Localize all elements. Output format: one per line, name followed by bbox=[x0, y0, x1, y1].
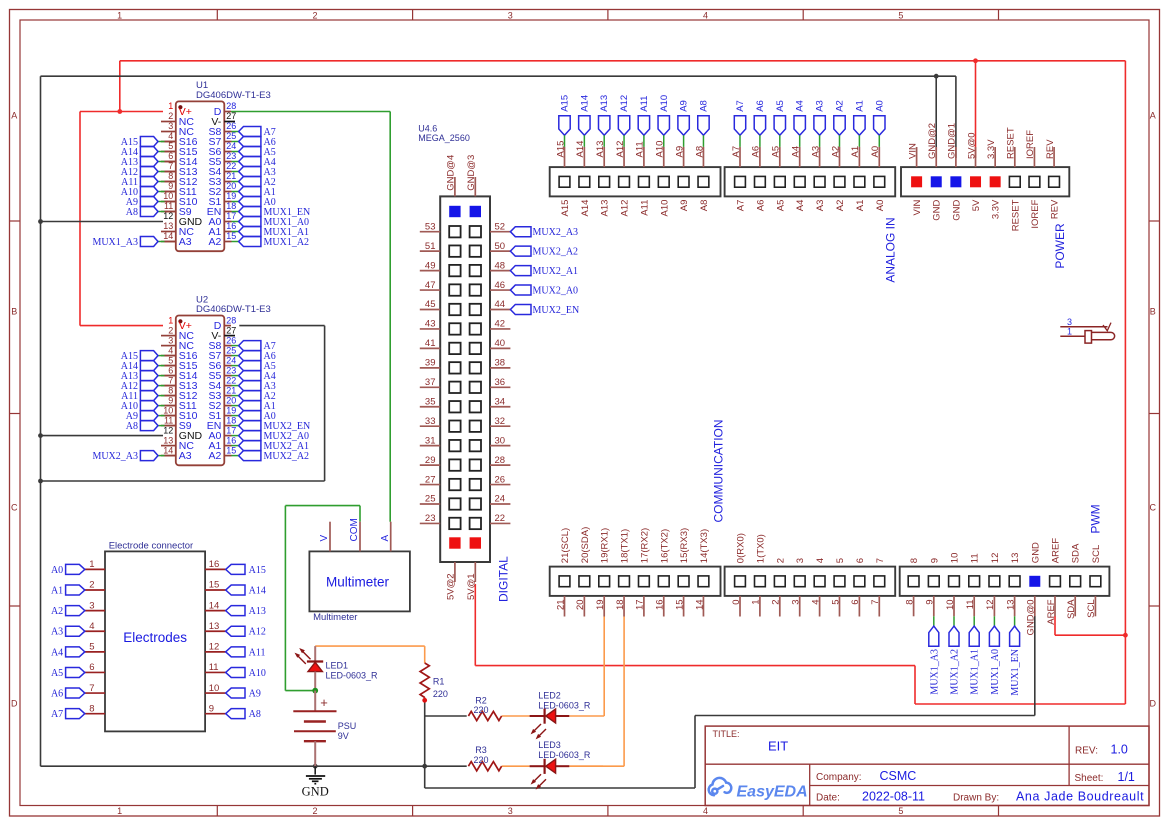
svg-text:D: D bbox=[11, 699, 18, 709]
svg-text:36: 36 bbox=[495, 377, 506, 388]
svg-text:35: 35 bbox=[425, 396, 436, 407]
svg-text:A3: A3 bbox=[810, 146, 821, 158]
svg-text:SCL: SCL bbox=[1091, 545, 1102, 563]
svg-text:19(RX1): 19(RX1) bbox=[600, 528, 611, 563]
svg-text:9V: 9V bbox=[338, 731, 349, 741]
svg-text:A9: A9 bbox=[674, 146, 685, 158]
svg-text:4: 4 bbox=[810, 599, 821, 604]
svg-text:50: 50 bbox=[495, 241, 506, 252]
svg-text:MUX1_A3: MUX1_A3 bbox=[929, 649, 940, 695]
svg-text:EasyEDA: EasyEDA bbox=[737, 783, 808, 800]
svg-text:A3: A3 bbox=[179, 450, 192, 462]
svg-text:GND@1: GND@1 bbox=[947, 123, 958, 159]
svg-text:A11: A11 bbox=[635, 141, 646, 157]
svg-text:9: 9 bbox=[929, 558, 940, 563]
svg-text:A: A bbox=[380, 535, 391, 542]
svg-text:GND@2: GND@2 bbox=[927, 123, 938, 159]
svg-text:A3: A3 bbox=[179, 236, 192, 248]
svg-text:8: 8 bbox=[904, 599, 915, 604]
svg-text:2: 2 bbox=[775, 558, 786, 563]
svg-text:3: 3 bbox=[508, 10, 513, 20]
svg-text:3.3V: 3.3V bbox=[991, 199, 1002, 219]
svg-text:GND: GND bbox=[1030, 542, 1041, 563]
svg-text:R3: R3 bbox=[475, 745, 487, 755]
svg-text:9: 9 bbox=[925, 599, 936, 604]
svg-text:2022-08-11: 2022-08-11 bbox=[862, 789, 925, 803]
svg-text:EIT: EIT bbox=[768, 739, 788, 754]
svg-text:51: 51 bbox=[425, 241, 436, 252]
svg-text:A1: A1 bbox=[51, 586, 63, 597]
svg-text:+: + bbox=[320, 695, 328, 710]
svg-text:16: 16 bbox=[226, 221, 236, 231]
svg-text:29: 29 bbox=[425, 455, 436, 466]
svg-text:13: 13 bbox=[163, 435, 173, 445]
svg-text:5: 5 bbox=[168, 355, 173, 365]
svg-text:A0: A0 bbox=[870, 146, 881, 158]
svg-text:COMMUNICATION: COMMUNICATION bbox=[712, 419, 726, 522]
svg-text:4: 4 bbox=[815, 558, 826, 563]
svg-text:5: 5 bbox=[898, 806, 903, 816]
svg-text:A10: A10 bbox=[659, 95, 670, 112]
svg-text:28: 28 bbox=[495, 455, 506, 466]
svg-text:Company:: Company: bbox=[816, 772, 862, 783]
svg-text:20: 20 bbox=[226, 181, 236, 191]
svg-text:37: 37 bbox=[425, 377, 436, 388]
svg-text:PWM: PWM bbox=[1089, 504, 1103, 533]
svg-text:22: 22 bbox=[226, 375, 236, 385]
svg-text:1.0: 1.0 bbox=[1111, 743, 1128, 757]
svg-text:5: 5 bbox=[89, 642, 94, 653]
svg-text:A14: A14 bbox=[580, 200, 591, 217]
svg-text:A7: A7 bbox=[731, 146, 742, 158]
svg-text:A6: A6 bbox=[755, 100, 766, 112]
svg-text:RESET: RESET bbox=[1006, 127, 1017, 159]
svg-text:14: 14 bbox=[694, 599, 705, 610]
svg-text:17: 17 bbox=[635, 599, 646, 610]
svg-text:28: 28 bbox=[226, 315, 236, 325]
svg-text:Electrode connector: Electrode connector bbox=[109, 541, 194, 552]
svg-text:13: 13 bbox=[163, 221, 173, 231]
svg-text:6: 6 bbox=[89, 662, 94, 673]
svg-text:18: 18 bbox=[615, 599, 626, 610]
svg-text:REV:: REV: bbox=[1075, 745, 1098, 756]
svg-text:A7: A7 bbox=[51, 709, 63, 720]
svg-text:A4: A4 bbox=[795, 100, 806, 112]
svg-text:Sheet:: Sheet: bbox=[1075, 773, 1104, 784]
svg-text:7: 7 bbox=[89, 683, 94, 694]
svg-text:21: 21 bbox=[226, 385, 236, 395]
svg-text:1: 1 bbox=[168, 315, 173, 325]
svg-text:A12: A12 bbox=[619, 95, 630, 112]
svg-text:0(RX0): 0(RX0) bbox=[736, 533, 747, 563]
svg-text:38: 38 bbox=[495, 358, 506, 369]
svg-text:23: 23 bbox=[425, 513, 436, 524]
svg-text:A14: A14 bbox=[579, 95, 590, 112]
svg-text:19: 19 bbox=[226, 191, 236, 201]
svg-text:REV: REV bbox=[1050, 199, 1061, 219]
svg-text:A9: A9 bbox=[679, 100, 690, 112]
svg-text:9: 9 bbox=[209, 703, 214, 714]
svg-text:LED-0603_R: LED-0603_R bbox=[538, 700, 591, 710]
svg-text:46: 46 bbox=[495, 280, 506, 291]
svg-text:4: 4 bbox=[703, 10, 708, 20]
svg-text:6: 6 bbox=[855, 558, 866, 563]
svg-text:SCL: SCL bbox=[1086, 599, 1097, 617]
svg-text:9: 9 bbox=[168, 395, 173, 405]
svg-text:TITLE:: TITLE: bbox=[713, 729, 740, 739]
svg-text:3: 3 bbox=[1067, 317, 1072, 327]
svg-text:26: 26 bbox=[226, 121, 236, 131]
svg-text:2: 2 bbox=[168, 325, 173, 335]
svg-text:17: 17 bbox=[226, 425, 236, 435]
svg-text:26: 26 bbox=[226, 335, 236, 345]
svg-text:16(TX2): 16(TX2) bbox=[659, 529, 670, 563]
svg-text:15: 15 bbox=[674, 599, 685, 610]
svg-text:49: 49 bbox=[425, 260, 436, 271]
svg-text:42: 42 bbox=[495, 319, 506, 330]
svg-text:15: 15 bbox=[226, 231, 236, 241]
svg-text:Drawn By:: Drawn By: bbox=[953, 792, 999, 803]
svg-text:13: 13 bbox=[1010, 553, 1021, 564]
svg-text:A10: A10 bbox=[655, 141, 666, 158]
svg-text:VIN: VIN bbox=[912, 199, 923, 215]
svg-text:A11: A11 bbox=[639, 200, 650, 216]
svg-text:20: 20 bbox=[575, 599, 586, 610]
svg-text:MUX2_A0: MUX2_A0 bbox=[533, 286, 579, 297]
svg-text:44: 44 bbox=[495, 299, 506, 310]
svg-text:A14: A14 bbox=[249, 586, 266, 597]
svg-text:COM: COM bbox=[349, 518, 360, 541]
svg-text:1: 1 bbox=[117, 806, 122, 816]
svg-text:RESET: RESET bbox=[1010, 199, 1021, 231]
svg-text:MUX2_EN: MUX2_EN bbox=[533, 305, 580, 316]
svg-text:C: C bbox=[1150, 503, 1157, 513]
svg-text:VIN: VIN bbox=[907, 143, 918, 159]
svg-text:D: D bbox=[1150, 699, 1157, 709]
svg-text:A8: A8 bbox=[694, 146, 705, 158]
svg-text:MUX1_EN: MUX1_EN bbox=[1010, 649, 1021, 696]
svg-text:A2: A2 bbox=[208, 236, 221, 248]
svg-text:A8: A8 bbox=[249, 709, 261, 720]
svg-text:2: 2 bbox=[771, 599, 782, 604]
svg-text:4: 4 bbox=[168, 131, 173, 141]
svg-text:A8: A8 bbox=[698, 100, 709, 112]
svg-text:A4: A4 bbox=[791, 146, 802, 158]
svg-text:A0: A0 bbox=[51, 565, 63, 576]
svg-text:22: 22 bbox=[495, 513, 506, 524]
svg-text:32: 32 bbox=[495, 416, 506, 427]
svg-text:GND@3: GND@3 bbox=[466, 155, 477, 191]
svg-text:A15: A15 bbox=[560, 95, 571, 112]
svg-text:GND@0: GND@0 bbox=[1026, 599, 1037, 635]
svg-text:3: 3 bbox=[89, 600, 94, 611]
svg-text:17(RX2): 17(RX2) bbox=[639, 528, 650, 563]
svg-text:3: 3 bbox=[168, 335, 173, 345]
svg-text:15: 15 bbox=[226, 445, 236, 455]
svg-text:20: 20 bbox=[226, 395, 236, 405]
svg-text:A5: A5 bbox=[775, 200, 786, 212]
svg-text:5: 5 bbox=[830, 599, 841, 604]
svg-text:C: C bbox=[11, 503, 18, 513]
svg-text:4: 4 bbox=[168, 345, 173, 355]
svg-text:A12: A12 bbox=[615, 141, 626, 158]
svg-text:27: 27 bbox=[425, 474, 436, 485]
svg-text:28: 28 bbox=[226, 101, 236, 111]
svg-text:MUX2_A3: MUX2_A3 bbox=[92, 451, 138, 462]
svg-text:14: 14 bbox=[209, 600, 220, 611]
svg-text:12: 12 bbox=[985, 599, 996, 610]
svg-text:27: 27 bbox=[226, 325, 236, 335]
svg-text:A5: A5 bbox=[771, 146, 782, 158]
svg-text:A8: A8 bbox=[126, 207, 138, 218]
svg-text:220: 220 bbox=[473, 705, 488, 715]
svg-text:33: 33 bbox=[425, 416, 436, 427]
svg-text:R1: R1 bbox=[433, 677, 445, 687]
svg-text:A2: A2 bbox=[51, 606, 63, 617]
svg-text:AREF: AREF bbox=[1046, 599, 1057, 625]
svg-text:17: 17 bbox=[226, 211, 236, 221]
svg-text:8: 8 bbox=[168, 171, 173, 181]
svg-text:LED3: LED3 bbox=[538, 740, 561, 750]
svg-text:A11: A11 bbox=[249, 647, 266, 658]
svg-text:3: 3 bbox=[508, 806, 513, 816]
svg-text:14: 14 bbox=[163, 231, 173, 241]
svg-text:LED-0603_R: LED-0603_R bbox=[326, 671, 379, 681]
svg-text:16: 16 bbox=[655, 599, 666, 610]
svg-text:1: 1 bbox=[751, 599, 762, 604]
svg-text:MUX2_A1: MUX2_A1 bbox=[533, 266, 579, 277]
svg-text:SDA: SDA bbox=[1066, 599, 1077, 619]
svg-text:A14: A14 bbox=[575, 141, 586, 158]
svg-text:A6: A6 bbox=[751, 146, 762, 158]
svg-text:MEGA_2560: MEGA_2560 bbox=[418, 133, 470, 143]
svg-text:Multimeter: Multimeter bbox=[313, 612, 357, 623]
svg-text:21(SCL): 21(SCL) bbox=[560, 528, 571, 563]
svg-text:21: 21 bbox=[226, 171, 236, 181]
svg-text:5V@1: 5V@1 bbox=[466, 573, 477, 600]
svg-text:48: 48 bbox=[495, 260, 506, 271]
svg-text:19: 19 bbox=[595, 599, 606, 610]
svg-text:7: 7 bbox=[168, 375, 173, 385]
svg-text:220: 220 bbox=[433, 689, 448, 699]
svg-text:3: 3 bbox=[791, 599, 802, 604]
svg-text:MUX2_A3: MUX2_A3 bbox=[533, 227, 579, 238]
svg-text:DG406DW-T1-E3: DG406DW-T1-E3 bbox=[196, 90, 271, 101]
svg-text:A0: A0 bbox=[875, 200, 886, 212]
svg-text:6: 6 bbox=[850, 599, 861, 604]
svg-text:A13: A13 bbox=[249, 606, 266, 617]
svg-text:A5: A5 bbox=[51, 668, 63, 679]
svg-text:AREF: AREF bbox=[1051, 538, 1062, 564]
svg-text:GND: GND bbox=[932, 199, 943, 220]
svg-text:4: 4 bbox=[89, 621, 94, 632]
svg-text:A15: A15 bbox=[555, 141, 566, 158]
svg-text:11: 11 bbox=[164, 201, 173, 211]
svg-text:5V@0: 5V@0 bbox=[966, 132, 977, 159]
svg-text:A3: A3 bbox=[51, 627, 63, 638]
svg-text:A6: A6 bbox=[51, 689, 63, 700]
svg-text:25: 25 bbox=[226, 131, 236, 141]
svg-text:GND@4: GND@4 bbox=[446, 155, 457, 191]
svg-text:53: 53 bbox=[425, 221, 436, 232]
svg-text:A1: A1 bbox=[854, 100, 865, 112]
svg-text:A7: A7 bbox=[735, 100, 746, 112]
svg-text:Multimeter: Multimeter bbox=[326, 575, 390, 590]
svg-text:PSU: PSU bbox=[338, 721, 357, 731]
svg-text:3: 3 bbox=[795, 558, 806, 563]
svg-text:5: 5 bbox=[168, 141, 173, 151]
svg-text:SDA: SDA bbox=[1071, 543, 1082, 563]
svg-text:MUX1_A2: MUX1_A2 bbox=[264, 237, 310, 248]
svg-text:9: 9 bbox=[168, 181, 173, 191]
svg-text:40: 40 bbox=[495, 338, 506, 349]
svg-text:2: 2 bbox=[89, 580, 94, 591]
svg-text:1: 1 bbox=[1067, 327, 1072, 337]
svg-text:6: 6 bbox=[168, 151, 173, 161]
svg-text:A9: A9 bbox=[679, 200, 690, 212]
svg-text:A15: A15 bbox=[560, 200, 571, 217]
svg-text:Ana Jade Boudreault: Ana Jade Boudreault bbox=[1016, 789, 1144, 803]
svg-text:2: 2 bbox=[312, 806, 317, 816]
svg-text:MUX1_A2: MUX1_A2 bbox=[950, 649, 961, 695]
svg-text:41: 41 bbox=[425, 338, 436, 349]
svg-text:ANALOG IN: ANALOG IN bbox=[884, 217, 898, 282]
svg-text:8: 8 bbox=[168, 385, 173, 395]
svg-text:A12: A12 bbox=[249, 627, 266, 638]
svg-text:15(RX3): 15(RX3) bbox=[679, 528, 690, 563]
svg-text:10: 10 bbox=[163, 405, 173, 415]
svg-text:REV: REV bbox=[1045, 139, 1056, 159]
svg-text:Date:: Date: bbox=[816, 792, 840, 803]
svg-text:30: 30 bbox=[495, 435, 506, 446]
svg-text:45: 45 bbox=[425, 299, 436, 310]
svg-text:34: 34 bbox=[495, 396, 506, 407]
svg-text:13: 13 bbox=[209, 621, 220, 632]
svg-text:A13: A13 bbox=[599, 95, 610, 112]
svg-text:A1: A1 bbox=[850, 146, 861, 158]
svg-text:8: 8 bbox=[89, 703, 94, 714]
svg-text:23: 23 bbox=[226, 151, 236, 161]
svg-text:1(TX0): 1(TX0) bbox=[755, 534, 766, 563]
svg-text:A9: A9 bbox=[249, 689, 261, 700]
svg-text:LED2: LED2 bbox=[538, 691, 561, 701]
svg-text:5V: 5V bbox=[971, 199, 982, 211]
svg-text:A4: A4 bbox=[51, 647, 63, 658]
svg-text:IOREF: IOREF bbox=[1030, 199, 1041, 228]
svg-text:25: 25 bbox=[425, 494, 436, 505]
svg-text:10: 10 bbox=[163, 191, 173, 201]
svg-text:15: 15 bbox=[209, 580, 220, 591]
svg-text:A3: A3 bbox=[815, 100, 826, 112]
svg-text:21: 21 bbox=[555, 599, 566, 610]
svg-text:A2: A2 bbox=[835, 200, 846, 212]
svg-text:8: 8 bbox=[909, 558, 920, 563]
svg-text:A2: A2 bbox=[830, 146, 841, 158]
svg-text:GND: GND bbox=[951, 199, 962, 220]
svg-text:V: V bbox=[319, 535, 330, 542]
svg-text:MUX2_A2: MUX2_A2 bbox=[264, 451, 310, 462]
svg-text:23: 23 bbox=[226, 365, 236, 375]
svg-text:A10: A10 bbox=[249, 668, 266, 679]
svg-text:5: 5 bbox=[898, 10, 903, 20]
svg-text:A2: A2 bbox=[208, 450, 221, 462]
svg-text:R2: R2 bbox=[475, 695, 487, 705]
svg-text:GND: GND bbox=[302, 784, 329, 798]
svg-text:2: 2 bbox=[312, 10, 317, 20]
svg-text:B: B bbox=[1150, 307, 1156, 317]
svg-text:0: 0 bbox=[731, 599, 742, 604]
svg-text:24: 24 bbox=[226, 355, 236, 365]
svg-text:3: 3 bbox=[168, 121, 173, 131]
svg-text:Electrodes: Electrodes bbox=[123, 630, 187, 645]
svg-text:IOREF: IOREF bbox=[1025, 130, 1036, 159]
svg-text:11: 11 bbox=[970, 553, 981, 563]
svg-text:1: 1 bbox=[117, 10, 122, 20]
svg-text:1/1: 1/1 bbox=[1118, 770, 1135, 784]
svg-text:18(TX1): 18(TX1) bbox=[620, 529, 631, 563]
svg-text:CSMC: CSMC bbox=[880, 769, 917, 783]
svg-text:MUX2_A2: MUX2_A2 bbox=[533, 247, 579, 258]
svg-text:31: 31 bbox=[425, 435, 436, 446]
svg-text:7: 7 bbox=[168, 161, 173, 171]
svg-text:1: 1 bbox=[89, 559, 94, 570]
svg-text:MUX1_A0: MUX1_A0 bbox=[990, 649, 1001, 695]
svg-text:A: A bbox=[1150, 111, 1156, 121]
svg-text:47: 47 bbox=[425, 280, 436, 291]
svg-text:3.3V: 3.3V bbox=[986, 139, 997, 159]
svg-text:27: 27 bbox=[226, 111, 236, 121]
svg-text:A: A bbox=[11, 111, 17, 121]
svg-text:11: 11 bbox=[965, 599, 976, 609]
svg-text:DG406DW-T1-E3: DG406DW-T1-E3 bbox=[196, 304, 271, 315]
svg-text:220: 220 bbox=[473, 755, 488, 765]
svg-text:B: B bbox=[11, 307, 17, 317]
svg-text:A4: A4 bbox=[795, 200, 806, 212]
svg-text:A13: A13 bbox=[600, 200, 611, 217]
svg-text:A8: A8 bbox=[699, 200, 710, 212]
svg-text:MUX1_A1: MUX1_A1 bbox=[970, 649, 981, 695]
svg-text:7: 7 bbox=[875, 558, 886, 563]
svg-text:A3: A3 bbox=[815, 200, 826, 212]
svg-text:A15: A15 bbox=[249, 565, 266, 576]
svg-text:24: 24 bbox=[226, 141, 236, 151]
svg-text:39: 39 bbox=[425, 358, 436, 369]
svg-text:DIGITAL: DIGITAL bbox=[497, 556, 511, 602]
svg-text:14: 14 bbox=[163, 445, 173, 455]
svg-text:12: 12 bbox=[209, 642, 220, 653]
svg-text:A12: A12 bbox=[620, 200, 631, 217]
svg-text:24: 24 bbox=[495, 494, 506, 505]
svg-text:6: 6 bbox=[168, 365, 173, 375]
svg-text:18: 18 bbox=[226, 415, 236, 425]
svg-text:A13: A13 bbox=[595, 141, 606, 158]
svg-text:A8: A8 bbox=[126, 421, 138, 432]
svg-text:10: 10 bbox=[950, 553, 961, 564]
svg-text:1: 1 bbox=[168, 101, 173, 111]
svg-text:5: 5 bbox=[835, 558, 846, 563]
svg-text:LED-0603_R: LED-0603_R bbox=[538, 750, 591, 760]
svg-text:11: 11 bbox=[164, 415, 173, 425]
svg-text:12: 12 bbox=[990, 553, 1001, 564]
svg-text:20(SDA): 20(SDA) bbox=[580, 527, 591, 563]
svg-text:10: 10 bbox=[209, 683, 220, 694]
svg-text:4: 4 bbox=[703, 806, 708, 816]
svg-text:LED1: LED1 bbox=[326, 661, 349, 671]
svg-text:A11: A11 bbox=[639, 96, 650, 112]
svg-text:12: 12 bbox=[163, 211, 173, 221]
svg-text:52: 52 bbox=[495, 221, 506, 232]
svg-text:10: 10 bbox=[945, 599, 956, 610]
